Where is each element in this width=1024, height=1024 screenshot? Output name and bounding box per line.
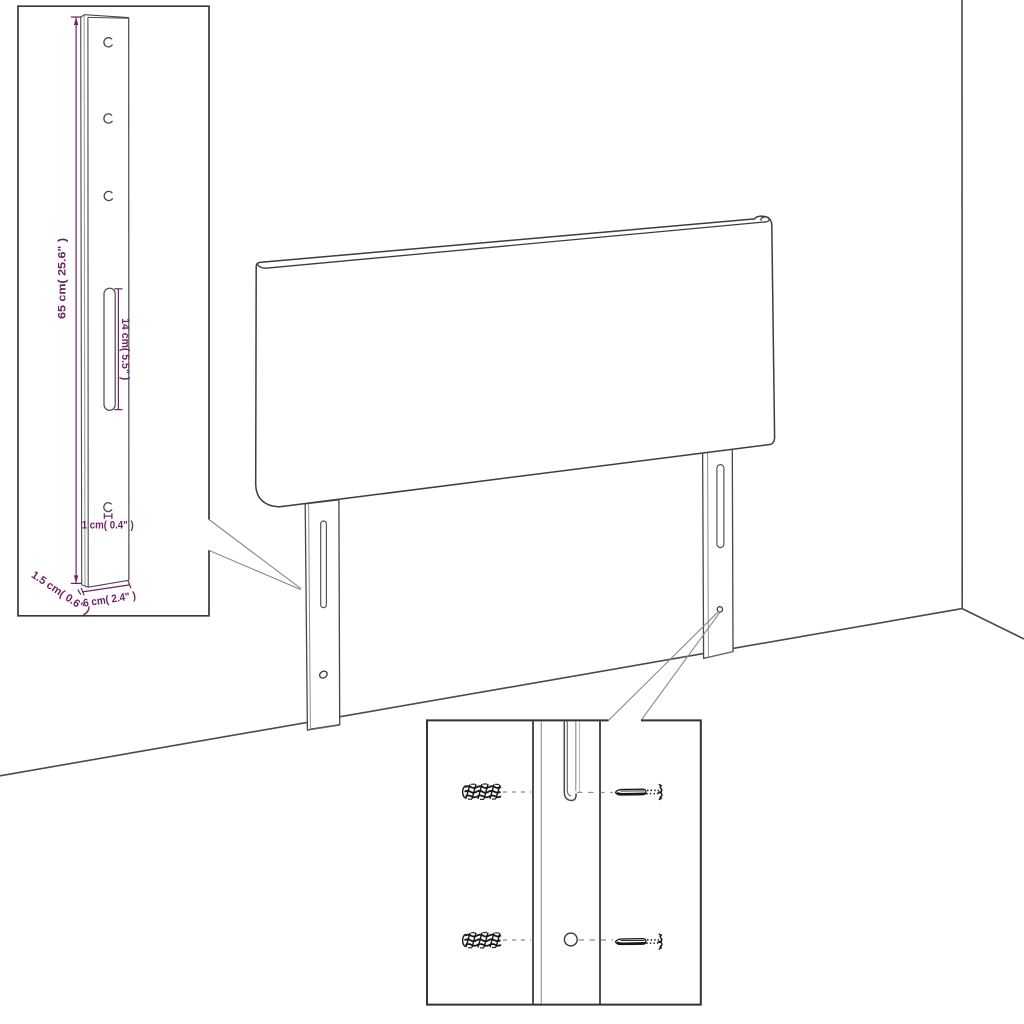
svg-text:65 cm( 25.6" ): 65 cm( 25.6" )	[56, 238, 68, 319]
svg-text:14 cm( 5.5" ): 14 cm( 5.5" )	[119, 318, 131, 380]
svg-text:1 cm( 0.4" ): 1 cm( 0.4" )	[82, 520, 134, 532]
